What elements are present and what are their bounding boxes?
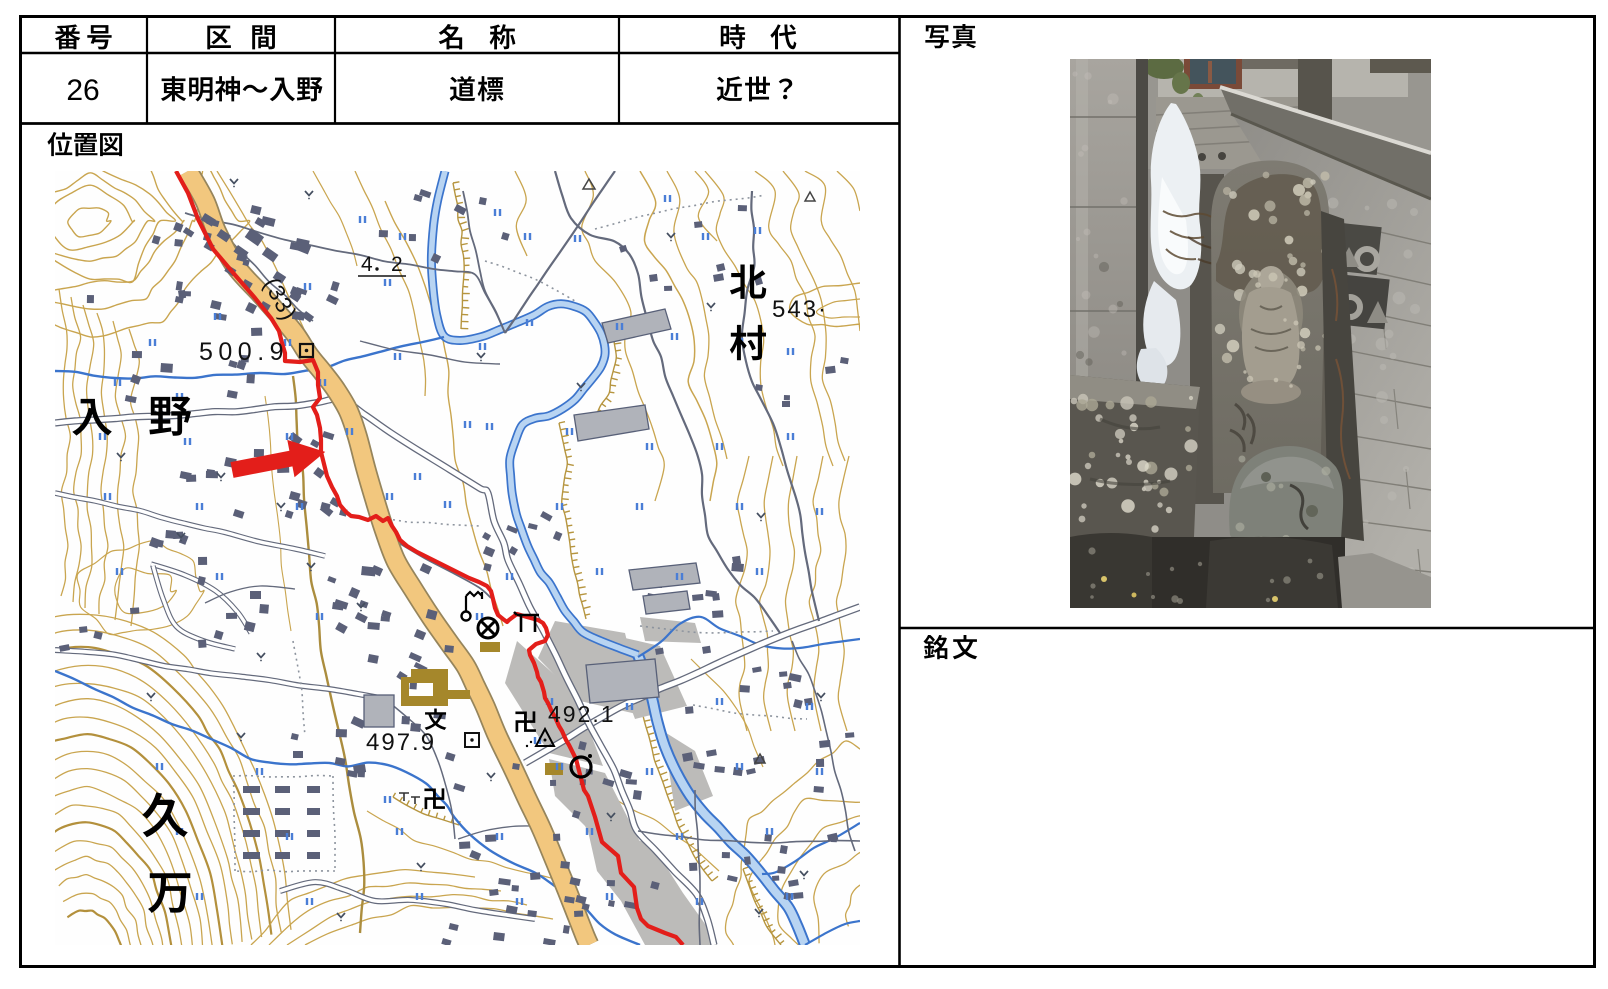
svg-text:497.9: 497.9: [366, 729, 436, 756]
svg-text:26: 26: [66, 74, 99, 107]
svg-text:543·: 543·: [772, 296, 828, 323]
svg-text:500.9: 500.9: [199, 338, 289, 366]
svg-text:4: 4: [361, 253, 373, 276]
svg-text:492.1: 492.1: [548, 701, 616, 727]
svg-text:2: 2: [391, 253, 403, 276]
